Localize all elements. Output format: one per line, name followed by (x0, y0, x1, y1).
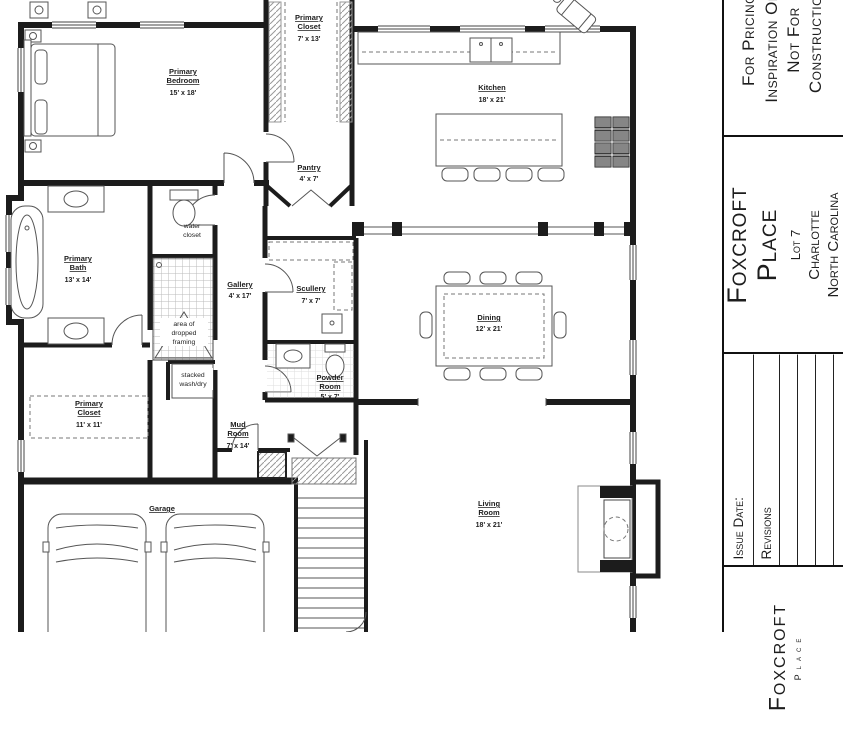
window (140, 20, 184, 30)
disclaimer-line: Not For (783, 7, 805, 73)
room-label-pantry: Pantry (297, 163, 321, 172)
svg-text:Closet: Closet (78, 408, 101, 417)
room-label-washer: stacked (181, 372, 205, 379)
svg-text:13' x 14': 13' x 14' (65, 277, 92, 284)
french-door (294, 438, 340, 456)
oven-column (595, 117, 629, 167)
room-label-living-room: Living (478, 499, 501, 508)
logo-subname: Place (793, 634, 803, 681)
svg-text:Room: Room (227, 429, 249, 438)
vanity-sink (48, 186, 104, 212)
project-city: Charlotte (806, 210, 825, 280)
svg-text:framing: framing (173, 339, 196, 346)
window (628, 245, 638, 280)
porch-column (30, 2, 48, 18)
logo-name: Foxcroft (764, 603, 791, 711)
svg-text:Bedroom: Bedroom (167, 76, 200, 85)
room-label-kitchen: Kitchen (478, 83, 506, 92)
island-stools (442, 168, 564, 181)
bathtub (11, 206, 43, 318)
room-label-mud-room: Mud (230, 420, 246, 429)
project-name: Foxcroft (722, 186, 752, 303)
revision-blank-row (816, 354, 834, 565)
window (628, 432, 638, 464)
revisions-row: Revisions (754, 354, 780, 565)
svg-text:7' x 13': 7' x 13' (298, 36, 321, 43)
revisions-label: Revisions (759, 507, 774, 559)
vanity-sink (48, 318, 104, 344)
room-label-primary-bath: Primary (64, 254, 93, 263)
revision-blank-row (798, 354, 816, 565)
svg-text:Bath: Bath (70, 263, 87, 272)
bed (24, 30, 115, 152)
svg-text:dropped: dropped (172, 330, 197, 337)
toilet (170, 190, 198, 226)
svg-text:18' x 21': 18' x 21' (479, 97, 506, 104)
issue-date-row: Issue Date: (724, 354, 754, 565)
issue-date-label: Issue Date: (731, 497, 746, 559)
window (16, 440, 26, 472)
door-arc (224, 153, 254, 183)
room-label-gallery: Gallery (227, 280, 253, 289)
door-jamb (288, 434, 294, 442)
revision-blank-row (780, 354, 798, 565)
project-section: Foxcroft Place Lot 7 Charlotte North Car… (724, 137, 842, 352)
svg-text:11' x 11': 11' x 11' (76, 422, 102, 429)
room-label-primary-closet-2: Primary (75, 399, 104, 408)
svg-text:7' x 7': 7' x 7' (302, 298, 321, 305)
room-label-dining: Dining (477, 313, 501, 322)
vanity-sink (276, 344, 310, 368)
stairs (298, 498, 366, 632)
svg-text:closet: closet (183, 232, 201, 239)
porch-steps (292, 458, 356, 484)
svg-text:7' x 14': 7' x 14' (227, 443, 250, 450)
svg-text:Closet: Closet (298, 22, 321, 31)
fireplace (578, 486, 633, 572)
window (628, 340, 638, 375)
svg-text:18' x 21': 18' x 21' (476, 522, 503, 529)
porch-column (88, 2, 106, 18)
door-jamb (340, 434, 346, 442)
room-label-garage: Garage (149, 504, 175, 513)
svg-text:Room: Room (478, 508, 500, 517)
disclaimer-line: Inspiration Only (761, 0, 783, 102)
room-label-powder-room: Powder (316, 373, 343, 382)
door-arc (266, 134, 294, 162)
svg-text:5' x 7': 5' x 7' (321, 394, 340, 401)
project-state: North Carolina (825, 192, 843, 297)
revisions-section: Issue Date: Revisions (724, 354, 842, 565)
svg-text:15' x 18': 15' x 18' (170, 90, 197, 97)
project-lot: Lot 7 (788, 229, 804, 260)
svg-text:wash/dry: wash/dry (178, 381, 207, 388)
door-arc (112, 315, 142, 345)
disclaimer-section: For Pricing Inspiration Only Not For Con… (724, 0, 842, 137)
room-label-dropped-framing: area of (173, 321, 194, 328)
disclaimer-line: Construction (805, 0, 827, 93)
floor-plan: Primary Bedroom 15' x 18' Primary Closet… (0, 0, 723, 632)
kitchen-sink (470, 38, 512, 62)
window (628, 586, 638, 618)
svg-text:12' x 21': 12' x 21' (476, 326, 503, 333)
svg-text:4' x 17': 4' x 17' (229, 293, 252, 300)
kitchen-island (436, 114, 562, 166)
door-arc (265, 264, 293, 292)
room-label-scullery: Scullery (296, 284, 326, 293)
svg-text:Room: Room (319, 382, 341, 391)
logo-section: Foxcroft Place (724, 567, 842, 747)
disclaimer-line: For Pricing (738, 0, 760, 85)
project-name: Place (752, 208, 782, 281)
svg-text:4' x 7': 4' x 7' (300, 176, 319, 183)
kitchen-counter (358, 32, 560, 64)
bifold-door (292, 190, 330, 206)
room-label-primary-closet-top: Primary (295, 13, 324, 22)
car (161, 514, 269, 632)
scullery-sink (322, 314, 342, 333)
car (43, 514, 151, 632)
window (52, 20, 96, 30)
room-label-water-closet: water (183, 223, 201, 230)
room-label-primary-bedroom: Primary (169, 67, 198, 76)
mud-locker (258, 452, 286, 478)
